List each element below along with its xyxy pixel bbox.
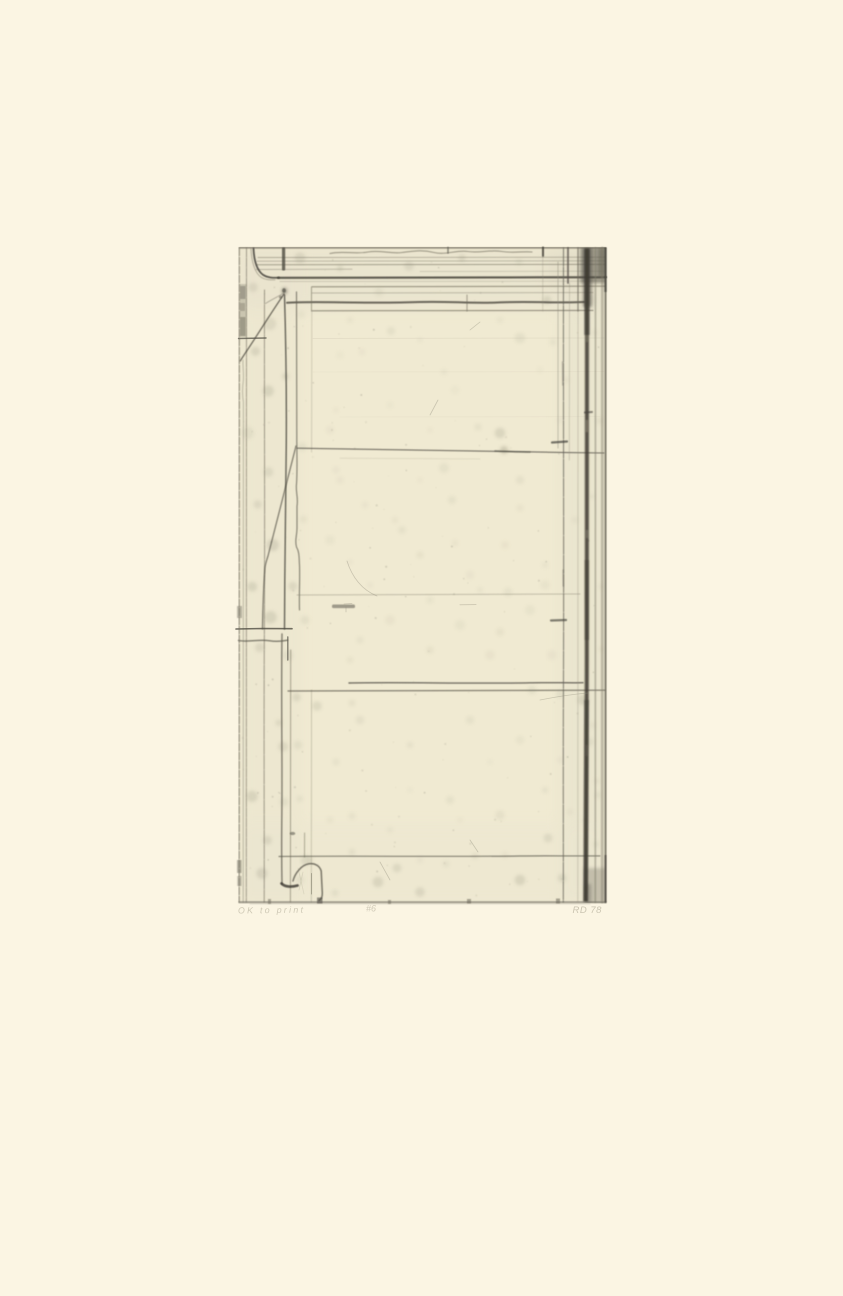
svg-text:#6: #6 [366, 904, 376, 914]
svg-text:RD 78: RD 78 [573, 905, 603, 916]
svg-text:OK to print: OK to print [238, 905, 305, 916]
